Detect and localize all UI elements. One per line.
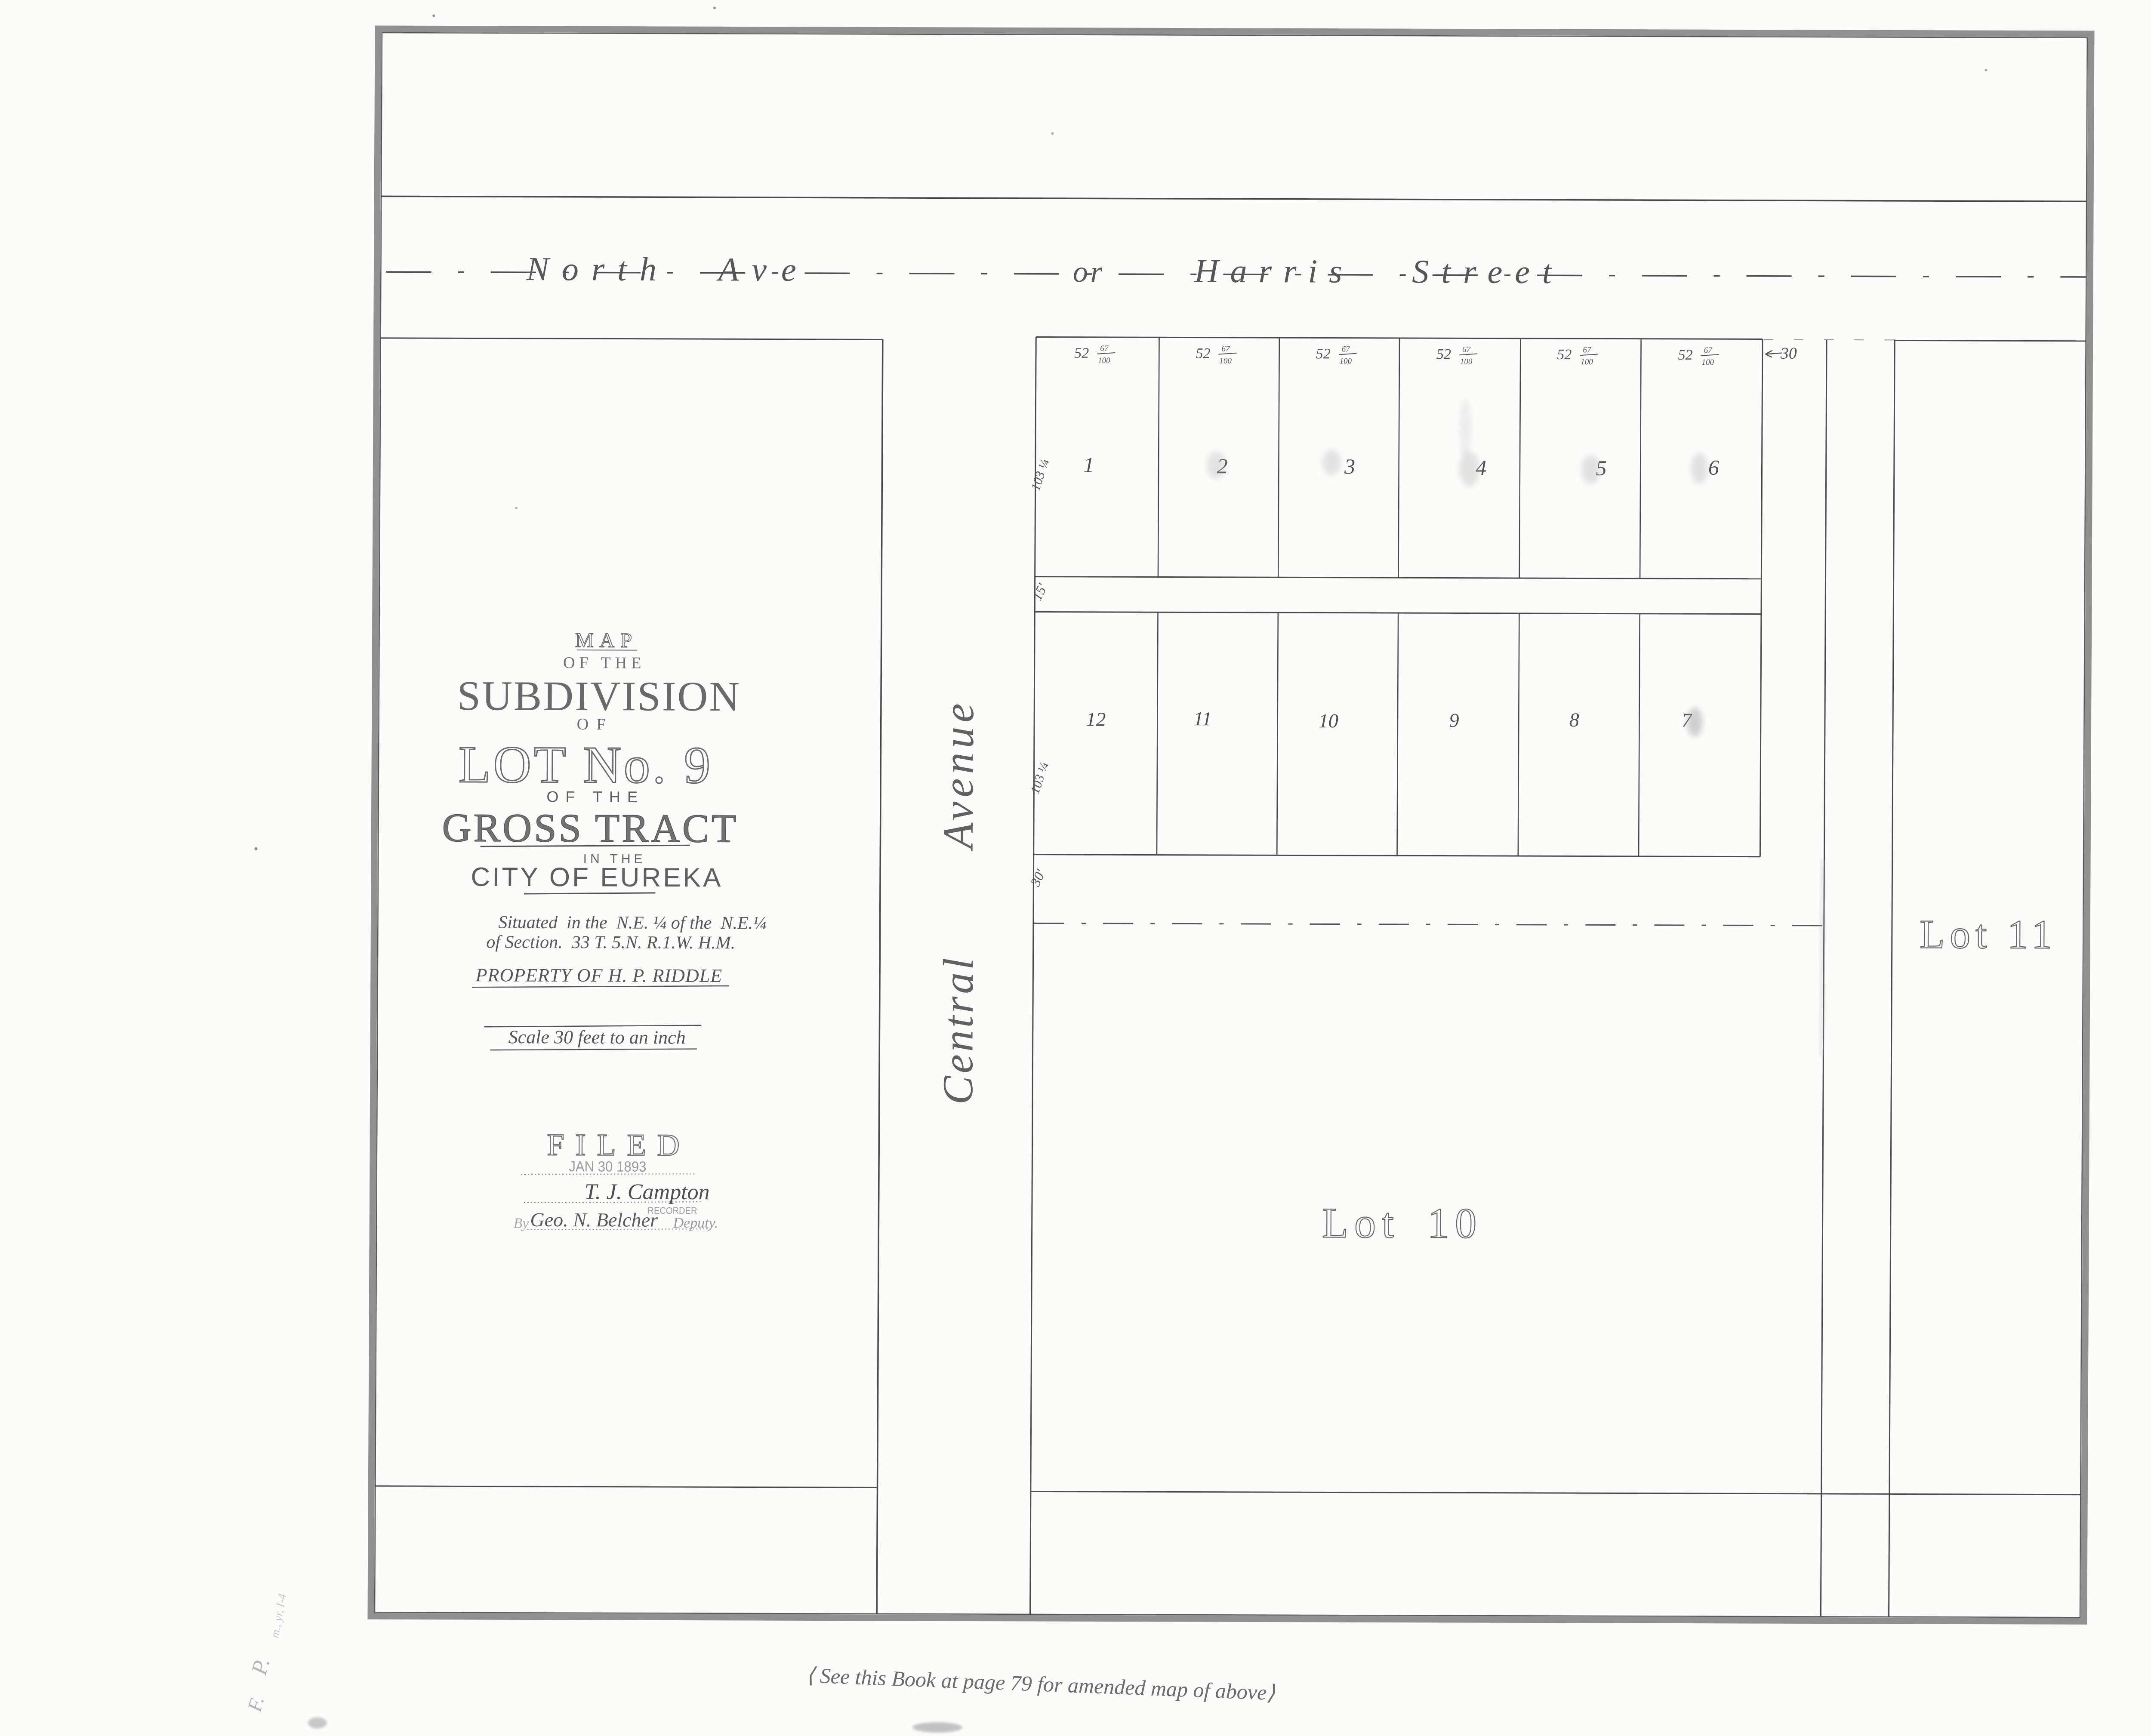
svg-text:100: 100	[1460, 357, 1473, 366]
svg-text:100: 100	[1219, 357, 1232, 366]
svg-text:52: 52	[1557, 347, 1572, 363]
svg-text:52: 52	[1316, 346, 1331, 362]
svg-text:9: 9	[1449, 709, 1459, 731]
svg-text:8: 8	[1569, 709, 1579, 731]
svg-text:11: 11	[1193, 708, 1212, 729]
svg-text:52: 52	[1436, 346, 1451, 362]
svg-text:North: North	[526, 250, 670, 288]
svg-text:LOT No. 9: LOT No. 9	[459, 736, 713, 794]
svg-text:PROPERTY OF H. P. RIDDLE: PROPERTY OF H. P. RIDDLE	[475, 964, 723, 986]
svg-text:or: or	[1073, 255, 1105, 289]
svg-text:OF THE: OF THE	[546, 788, 644, 806]
svg-text:3: 3	[1344, 454, 1355, 478]
svg-text:Street: Street	[1412, 253, 1564, 290]
svg-text:100: 100	[1701, 358, 1714, 367]
svg-text:6: 6	[1708, 456, 1719, 480]
svg-text:Harris: Harris	[1194, 252, 1354, 290]
svg-text:67: 67	[1342, 345, 1351, 354]
svg-text:10: 10	[1319, 710, 1338, 732]
svg-text:SUBDIVISION: SUBDIVISION	[457, 673, 741, 720]
svg-text:T. J. Campton: T. J. Campton	[585, 1179, 710, 1204]
svg-text:OF: OF	[577, 715, 613, 733]
svg-text:Lot 10: Lot 10	[1322, 1199, 1483, 1247]
svg-text:52: 52	[1074, 345, 1089, 361]
svg-text:67: 67	[1704, 346, 1713, 355]
svg-text:52: 52	[1678, 347, 1692, 363]
svg-text:By: By	[513, 1216, 529, 1231]
svg-text:52: 52	[1196, 346, 1210, 362]
svg-text:12: 12	[1086, 708, 1106, 730]
svg-text:Ave: Ave	[716, 251, 811, 289]
svg-text:CITY OF EUREKA: CITY OF EUREKA	[471, 862, 723, 893]
svg-text:100: 100	[1098, 356, 1110, 365]
svg-text:MAP: MAP	[575, 629, 638, 652]
svg-text:FILED: FILED	[547, 1127, 691, 1162]
svg-text:30: 30	[1780, 345, 1797, 363]
svg-text:100: 100	[1581, 357, 1593, 366]
svg-text:GROSS TRACT: GROSS TRACT	[442, 806, 738, 851]
svg-text:JAN 30 1893: JAN 30 1893	[569, 1158, 646, 1175]
svg-text:Situated in the N.E. ¼ of th: Situated in the N.E. ¼ of the N.E.¼	[498, 913, 766, 933]
svg-text:Lot 11: Lot 11	[1920, 911, 2057, 957]
svg-text:OF THE: OF THE	[563, 654, 646, 672]
svg-text:Avenue: Avenue	[934, 699, 983, 852]
svg-text:67: 67	[1221, 345, 1230, 354]
svg-text:of Section. 33 T. 5.N. R.1.W.: of Section. 33 T. 5.N. R.1.W. H.M.	[486, 933, 735, 953]
svg-text:Central: Central	[934, 955, 983, 1105]
svg-text:Geo. N. Belcher: Geo. N. Belcher	[530, 1209, 658, 1231]
svg-text:Scale 30 feet to an inch: Scale 30 feet to an inch	[508, 1026, 686, 1048]
svg-text:1: 1	[1083, 452, 1094, 477]
svg-text:100: 100	[1340, 357, 1352, 366]
svg-text:67: 67	[1462, 345, 1471, 354]
svg-text:67: 67	[1100, 344, 1109, 353]
svg-text:67: 67	[1583, 345, 1592, 354]
